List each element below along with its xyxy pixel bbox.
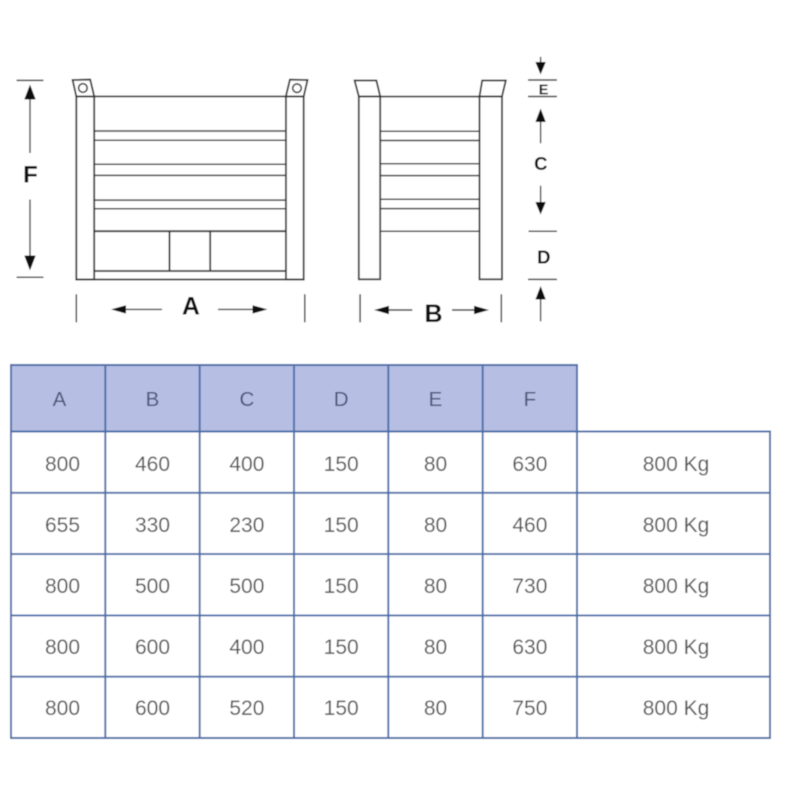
svg-text:80: 80 xyxy=(424,514,447,537)
svg-text:B: B xyxy=(424,300,442,328)
svg-text:F: F xyxy=(23,162,38,189)
svg-text:800 Kg: 800 Kg xyxy=(643,453,710,476)
svg-text:150: 150 xyxy=(324,575,359,598)
svg-text:80: 80 xyxy=(424,697,447,720)
svg-text:F: F xyxy=(524,388,537,411)
svg-text:460: 460 xyxy=(512,514,547,537)
svg-text:80: 80 xyxy=(424,636,447,659)
svg-text:630: 630 xyxy=(512,453,547,476)
svg-text:80: 80 xyxy=(424,575,447,598)
svg-text:500: 500 xyxy=(229,575,264,598)
svg-text:C: C xyxy=(534,153,547,174)
svg-text:800: 800 xyxy=(45,636,80,659)
svg-text:E: E xyxy=(539,82,549,98)
svg-text:500: 500 xyxy=(135,575,170,598)
svg-text:655: 655 xyxy=(45,514,80,537)
svg-text:800: 800 xyxy=(45,453,80,476)
svg-text:A: A xyxy=(53,388,67,411)
svg-text:800: 800 xyxy=(45,575,80,598)
svg-text:800 Kg: 800 Kg xyxy=(643,636,710,659)
svg-text:80: 80 xyxy=(424,453,447,476)
svg-text:150: 150 xyxy=(324,453,359,476)
svg-text:800 Kg: 800 Kg xyxy=(643,575,710,598)
svg-text:D: D xyxy=(334,388,349,411)
svg-text:400: 400 xyxy=(229,636,264,659)
svg-text:800: 800 xyxy=(45,697,80,720)
svg-text:230: 230 xyxy=(229,514,264,537)
svg-text:B: B xyxy=(146,388,160,411)
svg-text:730: 730 xyxy=(512,575,547,598)
svg-text:520: 520 xyxy=(229,697,264,720)
svg-text:460: 460 xyxy=(135,453,170,476)
svg-text:800 Kg: 800 Kg xyxy=(643,697,710,720)
svg-text:600: 600 xyxy=(135,697,170,720)
svg-text:750: 750 xyxy=(512,697,547,720)
svg-text:400: 400 xyxy=(229,453,264,476)
svg-text:600: 600 xyxy=(135,636,170,659)
svg-text:E: E xyxy=(429,388,443,411)
svg-text:A: A xyxy=(182,292,200,320)
svg-text:C: C xyxy=(239,388,254,411)
svg-text:800 Kg: 800 Kg xyxy=(643,514,710,537)
svg-text:150: 150 xyxy=(324,697,359,720)
svg-text:150: 150 xyxy=(324,514,359,537)
svg-text:630: 630 xyxy=(512,636,547,659)
svg-text:150: 150 xyxy=(324,636,359,659)
svg-text:330: 330 xyxy=(135,514,170,537)
svg-text:D: D xyxy=(537,247,550,268)
